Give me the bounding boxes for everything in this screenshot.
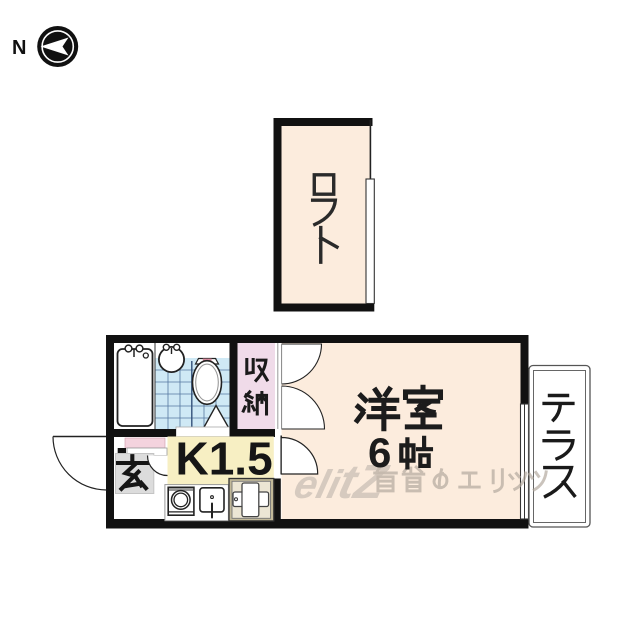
svg-text:N: N [12,37,26,59]
svg-text:6: 6 [368,429,391,476]
svg-text:K1.5: K1.5 [176,433,273,485]
